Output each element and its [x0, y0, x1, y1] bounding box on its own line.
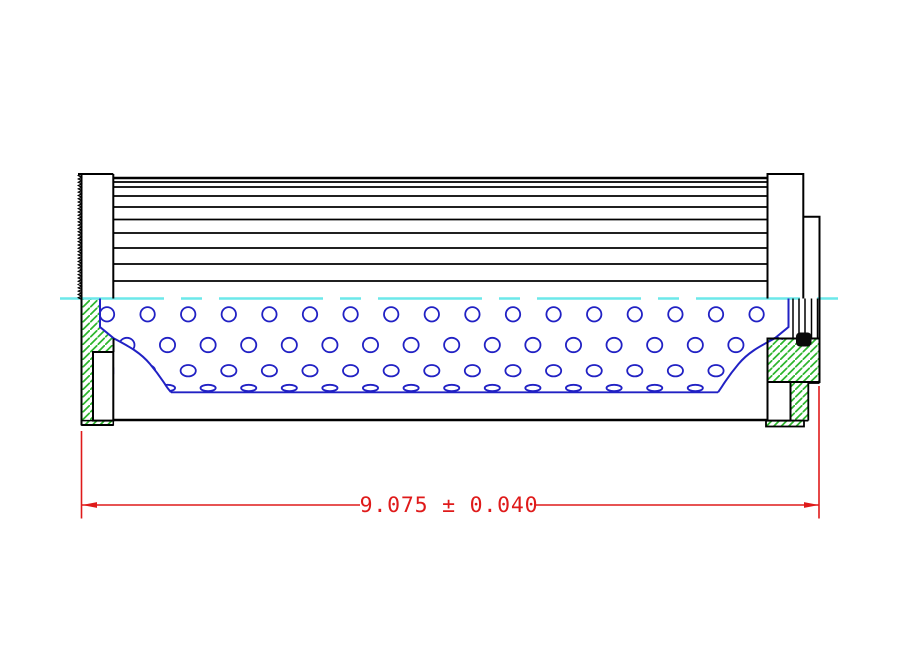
cap-outlines	[78, 174, 820, 427]
liner-mask	[114, 339, 789, 420]
end-cap-fills	[82, 174, 820, 299]
filter-element-section-drawing: 9.075 ± 0.040	[0, 0, 916, 664]
perforation-holes	[99, 307, 784, 391]
cap-grooves	[93, 352, 791, 421]
dimension: 9.075 ± 0.040	[82, 386, 820, 519]
dimension-text: 9.075 ± 0.040	[360, 493, 539, 518]
drawing-canvas: 9.075 ± 0.040	[0, 0, 916, 664]
